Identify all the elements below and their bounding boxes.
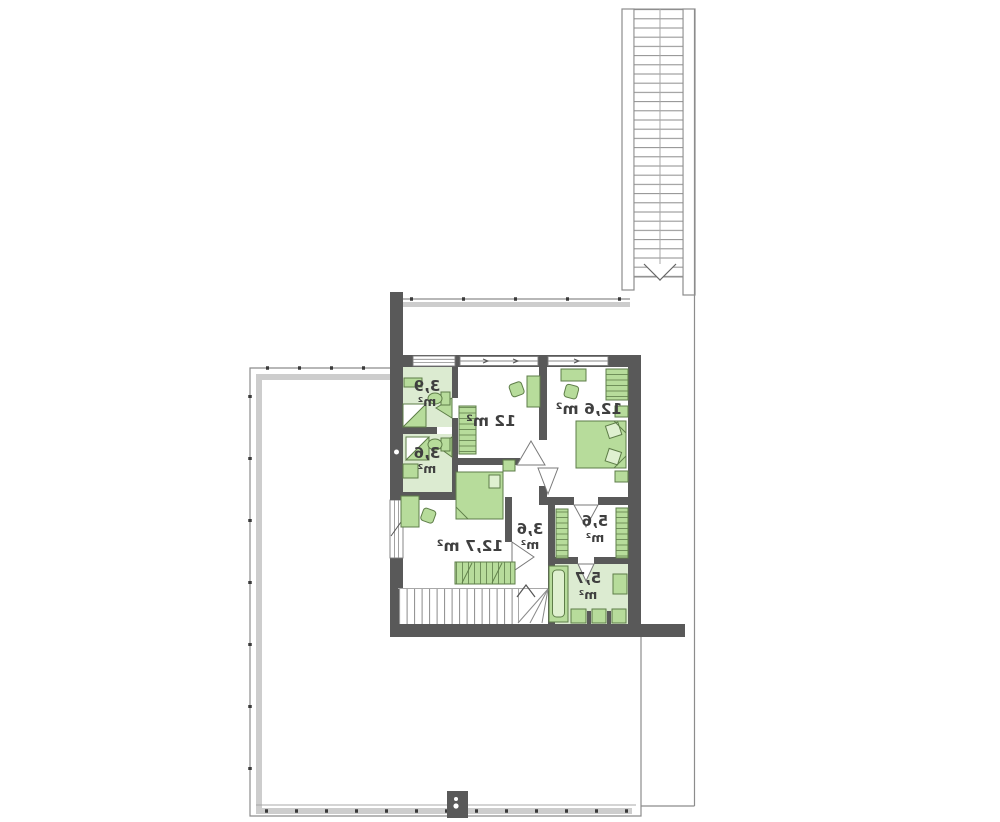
upper-terrace-railing <box>403 299 630 307</box>
exterior-staircase <box>622 9 695 295</box>
room-area-text: 3,9 <box>414 377 441 395</box>
bathroom-cabinet <box>613 574 627 594</box>
desk <box>561 369 586 381</box>
room-unit-text: m² <box>586 530 605 545</box>
bedroom-right-furniture <box>561 369 628 482</box>
wall-right <box>628 355 641 637</box>
wall-baths-right-upper <box>452 367 458 398</box>
wall-stub <box>607 611 611 624</box>
wall-wardrobe-top-right <box>598 497 640 505</box>
room-unit-text: m² <box>521 537 540 552</box>
stair-up-arrow-icon <box>517 585 535 597</box>
wardrobe <box>606 369 628 400</box>
stair-left-rail <box>622 9 634 290</box>
wall-wardrobe-top-left <box>547 497 574 505</box>
room-label-bedroom-left: 12,7 m² <box>437 537 504 555</box>
wall-pipe-dot <box>394 450 399 455</box>
wardrobe <box>556 509 568 558</box>
room-label-bedroom-top: 12 m² <box>466 412 516 430</box>
wall-bottom <box>390 624 685 637</box>
single-bed <box>456 472 503 519</box>
stair-right-rail <box>683 9 695 295</box>
window-bathroom-top <box>413 356 455 366</box>
double-bed <box>576 421 626 468</box>
door-bedroom-top <box>517 441 545 465</box>
wall-stub <box>587 611 591 624</box>
wall-wardrobe-left <box>548 505 555 557</box>
room-unit-text: m² <box>418 394 437 409</box>
nightstand <box>503 460 515 471</box>
floor-plan-canvas: 3,9 m² 3,6 m² 12 m² 12,6 m² 3,6 m² 12,7 … <box>0 0 1000 822</box>
washbasin <box>403 464 418 478</box>
room-label-bedroom-right: 12,6 m² <box>556 400 623 418</box>
shelf <box>455 562 515 584</box>
room-label-wardrobe: 5,6 m² <box>582 512 609 545</box>
desk <box>527 376 540 407</box>
room-area-text: 3,6 <box>414 444 441 462</box>
washbasin <box>592 609 606 623</box>
desk <box>401 496 419 527</box>
toilet <box>612 609 626 623</box>
terrace-railing-band-bottom <box>256 808 632 814</box>
wall-bath-mid-bottom <box>390 492 457 500</box>
desk-chair <box>420 507 437 524</box>
bathtub <box>549 566 568 622</box>
room-area-text: 3,6 <box>517 520 544 538</box>
room-area-text: 12,7 m² <box>437 537 504 555</box>
wall-hall-left <box>505 497 512 542</box>
floor-plan-page: 3,9 m² 3,6 m² 12 m² 12,6 m² 3,6 m² 12,7 … <box>0 0 1000 822</box>
wall-between-baths <box>403 427 437 434</box>
room-unit-text: m² <box>579 587 598 602</box>
window-bedroom-top <box>460 357 538 366</box>
desk-chair <box>563 384 579 400</box>
room-area-text: 12 m² <box>466 412 516 430</box>
room-label-hall: 3,6 m² <box>517 520 544 552</box>
stair-treads <box>634 9 683 277</box>
room-unit-text: m² <box>418 461 437 476</box>
wardrobe <box>616 508 628 558</box>
desk-chair <box>508 381 525 398</box>
room-area-text: 5,7 <box>575 569 602 587</box>
terrace-railing-band-top <box>256 374 390 380</box>
chimney <box>447 791 468 818</box>
room-area-text: 5,6 <box>582 512 609 530</box>
washing-machine <box>571 609 586 623</box>
wall-left <box>390 292 403 637</box>
window-bedroom-right <box>548 357 608 366</box>
interior-staircase <box>398 585 548 624</box>
room-area-text: 12,6 m² <box>556 400 623 418</box>
pillow <box>489 475 500 488</box>
terrace-railing-band-left <box>256 374 262 810</box>
nightstand <box>615 471 628 482</box>
